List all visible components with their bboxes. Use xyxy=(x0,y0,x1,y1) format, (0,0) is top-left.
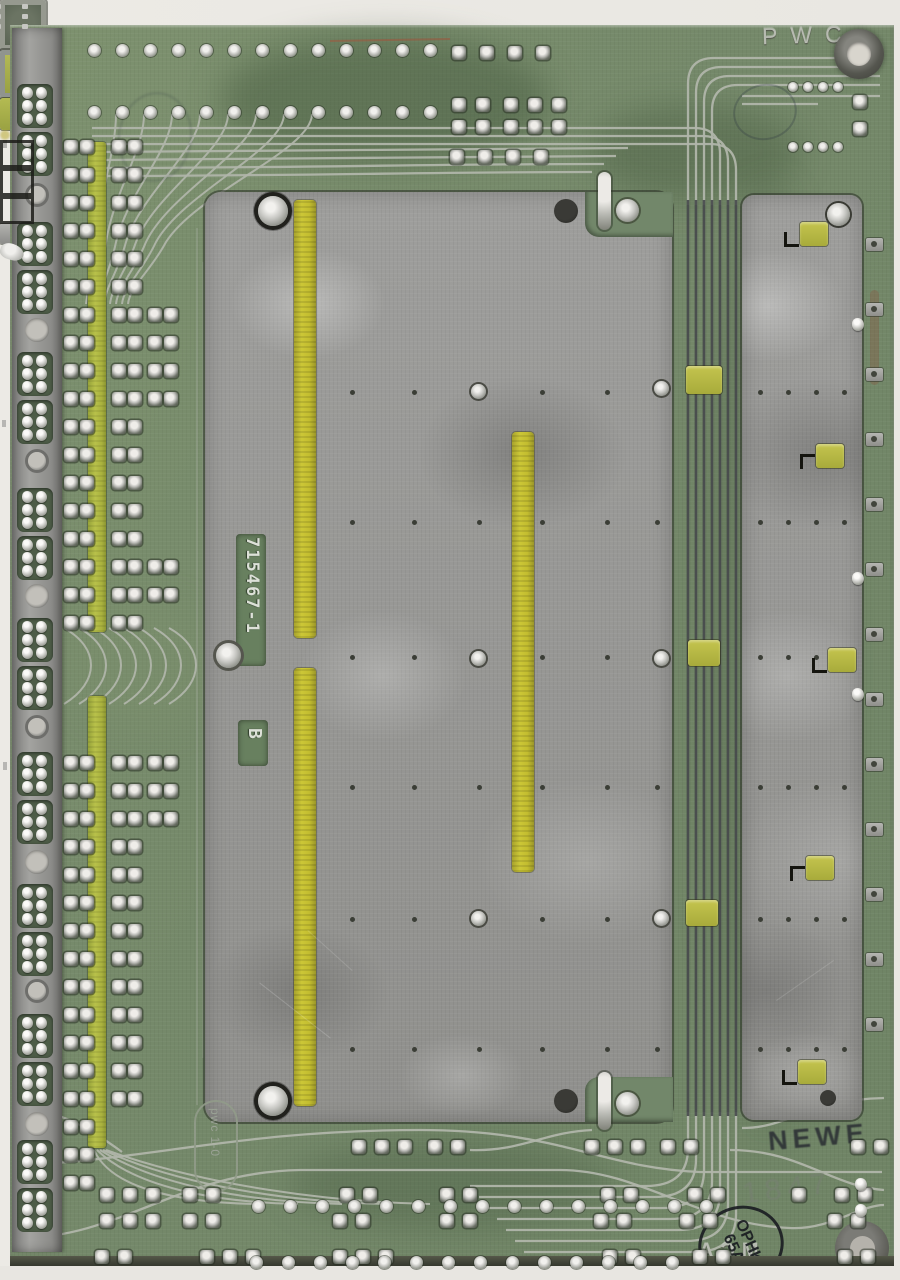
solder-pad-square xyxy=(506,150,520,164)
solder-pad-square xyxy=(148,560,162,574)
solder-joint xyxy=(36,273,47,285)
solder-joint xyxy=(22,1030,33,1042)
solder-pad-square xyxy=(128,280,142,294)
solder-joint xyxy=(36,647,47,659)
plate-index-hole xyxy=(758,390,763,395)
connector-cutout xyxy=(17,932,53,976)
solder-joint xyxy=(22,1091,33,1103)
solder-pad-square xyxy=(206,1214,220,1228)
solder-pad-square xyxy=(64,812,78,826)
plate-index-hole xyxy=(350,655,355,660)
solder-pad-round xyxy=(604,1200,617,1213)
yellow-tape-patch xyxy=(806,856,834,880)
solder-pad-square xyxy=(112,308,126,322)
solder-pad-round xyxy=(424,44,437,57)
plate-hole xyxy=(554,1089,578,1113)
solder-pad-round xyxy=(314,1256,327,1269)
solder-pad-square xyxy=(463,1188,477,1202)
solder-pad-square xyxy=(64,140,78,154)
connector-cutout xyxy=(17,1188,53,1232)
plate-index-hole xyxy=(350,390,355,395)
pwc-oval-text: pwc 1-0 xyxy=(203,1108,227,1184)
component-lead xyxy=(22,14,28,19)
plate-index-hole xyxy=(758,917,763,922)
solder-pad-square xyxy=(64,336,78,350)
solder-joint xyxy=(22,368,33,380)
solder-joint xyxy=(22,669,33,681)
solder-pad-round xyxy=(788,82,798,92)
solder-pad-round xyxy=(508,1200,521,1213)
notch-screw xyxy=(616,199,639,222)
solder-pad-round xyxy=(636,1200,649,1213)
solder-pad-square xyxy=(128,756,142,770)
rail-hole xyxy=(25,584,49,608)
solder-joint xyxy=(22,755,33,767)
solder-joint xyxy=(22,87,33,99)
plate-index-hole xyxy=(350,520,355,525)
solder-pad-square xyxy=(528,120,542,134)
solder-pad-square xyxy=(128,364,142,378)
solder-pad-round xyxy=(818,82,828,92)
solder-joint xyxy=(22,1156,33,1168)
solder-pad-square xyxy=(200,1250,214,1264)
solder-pad-round xyxy=(666,1256,679,1269)
solder-joint xyxy=(852,688,864,701)
solder-joint xyxy=(36,1078,47,1090)
component-lead xyxy=(22,24,28,29)
yellow-tape-patch xyxy=(688,640,720,666)
solder-joint xyxy=(36,504,47,516)
solder-pad-square xyxy=(80,1148,94,1162)
solder-joint xyxy=(22,286,33,298)
solder-joint xyxy=(22,682,33,694)
plate-index-hole xyxy=(842,390,847,395)
solder-pad-round xyxy=(410,1256,423,1269)
plate-index-hole xyxy=(350,785,355,790)
connector-cutout xyxy=(17,1014,53,1058)
solder-joint xyxy=(36,1091,47,1103)
solder-pad-square xyxy=(112,392,126,406)
plate-index-hole xyxy=(605,520,610,525)
solder-pad-square xyxy=(164,336,178,350)
solder-joint xyxy=(22,887,33,899)
solder-pad-square xyxy=(64,840,78,854)
solder-pad-square xyxy=(504,120,518,134)
solder-pad-round xyxy=(380,1200,393,1213)
edge-tab xyxy=(866,693,883,706)
solder-pad-square xyxy=(64,392,78,406)
solder-pad-square xyxy=(476,120,490,134)
solder-pad-square xyxy=(64,1148,78,1162)
plate-rivet xyxy=(654,911,669,926)
solder-pad-square xyxy=(164,308,178,322)
solder-joint xyxy=(22,935,33,947)
solder-pad-square xyxy=(64,476,78,490)
solder-joint xyxy=(36,935,47,947)
solder-joint xyxy=(22,913,33,925)
solder-joint xyxy=(22,1065,33,1077)
trace-path xyxy=(64,628,91,704)
solder-pad-square xyxy=(112,868,126,882)
solder-pad-square xyxy=(80,476,94,490)
solder-pad-square xyxy=(463,1214,477,1228)
solder-pad-round xyxy=(368,44,381,57)
solder-joint xyxy=(22,299,33,311)
plate-screw-ringed xyxy=(258,196,288,226)
solder-pad-square xyxy=(680,1214,694,1228)
plate-index-hole xyxy=(540,785,545,790)
yellow-tape-patch xyxy=(800,222,828,246)
plate-index-hole xyxy=(814,390,819,395)
solder-pad-square xyxy=(128,140,142,154)
solder-pad-square xyxy=(552,120,566,134)
solder-pad-square xyxy=(183,1188,197,1202)
solder-pad-square xyxy=(631,1140,645,1154)
solder-pad-square xyxy=(711,1188,725,1202)
plate-index-hole xyxy=(758,1047,763,1052)
solder-pad-square xyxy=(112,980,126,994)
solder-joint xyxy=(22,621,33,633)
solder-pad-square xyxy=(80,980,94,994)
solder-pad-square xyxy=(80,1008,94,1022)
solder-joint xyxy=(36,565,47,577)
solder-pad-square xyxy=(64,952,78,966)
solder-pad-square xyxy=(148,364,162,378)
tab-hole xyxy=(871,436,877,442)
solder-joint xyxy=(36,1217,47,1229)
solder-joint xyxy=(36,887,47,899)
solder-joint xyxy=(36,238,47,250)
solder-pad-square xyxy=(95,1250,109,1264)
solder-joint xyxy=(36,135,47,147)
solder-pad-round xyxy=(538,1256,551,1269)
solder-pad-square xyxy=(64,616,78,630)
solder-joint xyxy=(36,539,47,551)
solder-joint xyxy=(22,273,33,285)
plate-index-hole xyxy=(842,520,847,525)
yellow-strip-left-upper xyxy=(294,200,316,638)
solder-joint xyxy=(36,768,47,780)
solder-pad-square xyxy=(112,560,126,574)
component-lead xyxy=(0,4,1,9)
solder-pad-round xyxy=(348,1200,361,1213)
solder-pad-square xyxy=(128,1064,142,1078)
solder-pad-square xyxy=(508,46,522,60)
solder-pad-square xyxy=(128,476,142,490)
solder-pad-round xyxy=(88,44,101,57)
solder-pad-round xyxy=(284,106,297,119)
solder-pad-square xyxy=(64,280,78,294)
solder-joint xyxy=(22,1078,33,1090)
solder-pad-square xyxy=(333,1214,347,1228)
pcb-scan: 715467-1 B PWC pwc 1-0 MCA NEWE 1847 OPH… xyxy=(0,0,900,1280)
plate-index-hole xyxy=(605,1047,610,1052)
solder-pad-square xyxy=(80,1064,94,1078)
solder-pad-square xyxy=(112,336,126,350)
solder-joint xyxy=(22,961,33,973)
solder-pad-square xyxy=(363,1188,377,1202)
plate-index-hole xyxy=(655,1047,660,1052)
solder-pad-square xyxy=(112,476,126,490)
plate-index-hole xyxy=(758,785,763,790)
solder-pad-square xyxy=(80,896,94,910)
connector-cutout xyxy=(17,84,53,128)
bracket-mark xyxy=(0,168,34,182)
connector-cutout xyxy=(17,1140,53,1184)
solder-pad-square xyxy=(838,1250,852,1264)
solder-pad-square xyxy=(128,616,142,630)
connector-cutout xyxy=(17,618,53,662)
corner-mark xyxy=(782,1070,797,1085)
solder-pad-round xyxy=(833,82,843,92)
solder-pad-square xyxy=(128,336,142,350)
revision-text: B xyxy=(240,728,268,764)
solder-pad-square xyxy=(123,1188,137,1202)
solder-pad-round xyxy=(284,1200,297,1213)
solder-joint xyxy=(36,1204,47,1216)
solder-joint xyxy=(22,539,33,551)
plate-index-hole xyxy=(412,655,417,660)
solder-joint xyxy=(36,148,47,160)
solder-joint xyxy=(852,572,864,585)
tab-hole xyxy=(871,371,877,377)
component-lead xyxy=(22,4,28,9)
solder-pad-square xyxy=(206,1188,220,1202)
solder-pad-square xyxy=(80,868,94,882)
solder-pad-square xyxy=(80,560,94,574)
solder-pad-square xyxy=(128,840,142,854)
right-plate-screw xyxy=(827,203,850,226)
solder-pad-square xyxy=(64,896,78,910)
yellow-strip-center xyxy=(512,432,534,872)
solder-pad-round xyxy=(602,1256,615,1269)
solder-pad-round xyxy=(228,44,241,57)
scan-mark xyxy=(3,762,7,770)
solder-pad-square xyxy=(80,420,94,434)
solder-pad-square xyxy=(64,252,78,266)
plate-screw-ringed xyxy=(258,1086,288,1116)
solder-pad-square xyxy=(504,98,518,112)
solder-joint xyxy=(36,682,47,694)
solder-pad-square xyxy=(478,150,492,164)
yellow-tape-patch xyxy=(686,900,718,926)
trace-path xyxy=(109,628,136,704)
plate-index-hole xyxy=(540,655,545,660)
solder-pad-square xyxy=(223,1250,237,1264)
solder-pad-square xyxy=(450,150,464,164)
solder-joint xyxy=(22,504,33,516)
solder-pad-round xyxy=(200,106,213,119)
solder-pad-square xyxy=(112,280,126,294)
right-plate-hole xyxy=(820,1090,836,1106)
solder-pad-square xyxy=(792,1188,806,1202)
solder-pad-round xyxy=(256,106,269,119)
solder-pad-square xyxy=(80,224,94,238)
solder-joint xyxy=(36,251,47,263)
edge-tab xyxy=(866,758,883,771)
solder-pad-square xyxy=(183,1214,197,1228)
corner-mark xyxy=(812,658,827,673)
solder-pad-round xyxy=(396,106,409,119)
solder-pad-square xyxy=(64,224,78,238)
plate-index-hole xyxy=(412,520,417,525)
solder-joint xyxy=(855,1204,867,1217)
tab-hole xyxy=(871,631,877,637)
plate-index-hole xyxy=(350,1047,355,1052)
solder-joint xyxy=(36,621,47,633)
solder-joint xyxy=(22,948,33,960)
solder-pad-round xyxy=(116,106,129,119)
solder-joint xyxy=(22,781,33,793)
plate-index-hole xyxy=(758,520,763,525)
solder-pad-square xyxy=(164,588,178,602)
solder-joint xyxy=(22,803,33,815)
solder-pad-square xyxy=(112,1092,126,1106)
solder-pad-round xyxy=(700,1200,713,1213)
plate-index-hole xyxy=(540,1047,545,1052)
tab-hole xyxy=(871,1021,877,1027)
solder-joint xyxy=(22,634,33,646)
solder-pad-square xyxy=(851,1140,865,1154)
solder-pad-square xyxy=(112,952,126,966)
solder-joint xyxy=(36,1017,47,1029)
solder-pad-square xyxy=(80,1176,94,1190)
solder-joint xyxy=(22,381,33,393)
solder-pad-square xyxy=(148,392,162,406)
connector-cutout xyxy=(17,400,53,444)
solder-pad-square xyxy=(80,364,94,378)
plate-index-hole xyxy=(540,520,545,525)
rail-hole xyxy=(28,718,46,736)
solder-joint xyxy=(22,900,33,912)
trace-path xyxy=(154,628,181,704)
solder-pad-square xyxy=(64,420,78,434)
solder-pad-square xyxy=(148,308,162,322)
solder-pad-round xyxy=(368,106,381,119)
trace-path xyxy=(79,628,106,704)
solder-pad-square xyxy=(112,140,126,154)
solder-joint xyxy=(22,768,33,780)
solder-pad-square xyxy=(352,1140,366,1154)
solder-pad-round xyxy=(540,1200,553,1213)
solder-pad-round xyxy=(144,44,157,57)
solder-pad-square xyxy=(80,336,94,350)
solder-pad-square xyxy=(64,168,78,182)
solder-pad-round xyxy=(572,1200,585,1213)
stadium-pad xyxy=(598,1072,611,1130)
plate-index-hole xyxy=(540,390,545,395)
edge-tab xyxy=(866,888,883,901)
solder-joint xyxy=(22,355,33,367)
notch-screw xyxy=(616,1092,639,1115)
solder-pad-square xyxy=(64,308,78,322)
solder-pad-square xyxy=(80,392,94,406)
solder-pad-square xyxy=(64,1120,78,1134)
solder-joint xyxy=(22,552,33,564)
solder-pad-square xyxy=(398,1140,412,1154)
solder-pad-square xyxy=(148,756,162,770)
solder-pad-square xyxy=(112,812,126,826)
solder-joint xyxy=(36,816,47,828)
solder-pad-square xyxy=(128,924,142,938)
rail-hole xyxy=(25,318,49,342)
solder-pad-square xyxy=(112,196,126,210)
solder-pad-square xyxy=(333,1250,347,1264)
solder-joint xyxy=(855,1178,867,1191)
solder-pad-square xyxy=(476,98,490,112)
solder-joint xyxy=(36,695,47,707)
rail-hole xyxy=(28,982,46,1000)
edge-tab xyxy=(866,823,883,836)
bracket-mark xyxy=(0,210,34,224)
solder-pad-square xyxy=(80,784,94,798)
solder-joint xyxy=(22,1017,33,1029)
plate-rivet xyxy=(471,651,486,666)
bracket-mark xyxy=(0,182,34,196)
solder-pad-square xyxy=(128,1092,142,1106)
solder-pad-round xyxy=(282,1256,295,1269)
solder-joint xyxy=(36,381,47,393)
solder-pad-square xyxy=(128,812,142,826)
solder-pad-square xyxy=(118,1250,132,1264)
solder-pad-round xyxy=(474,1256,487,1269)
solder-pad-round xyxy=(412,1200,425,1213)
edge-tab xyxy=(866,563,883,576)
connector-cutout xyxy=(17,884,53,928)
solder-pad-square xyxy=(617,1214,631,1228)
solder-pad-square xyxy=(128,196,142,210)
solder-joint xyxy=(36,286,47,298)
solder-joint xyxy=(36,1065,47,1077)
flux-stain xyxy=(0,130,10,140)
solder-pad-square xyxy=(112,504,126,518)
solder-pad-square xyxy=(64,532,78,546)
solder-pad-square xyxy=(80,1120,94,1134)
solder-pad-square xyxy=(112,616,126,630)
plate-index-hole xyxy=(786,785,791,790)
plate-index-hole xyxy=(758,655,763,660)
solder-joint xyxy=(22,491,33,503)
solder-pad-round xyxy=(803,82,813,92)
solder-pad-square xyxy=(624,1188,638,1202)
solder-pad-square xyxy=(64,980,78,994)
solder-pad-square xyxy=(112,1036,126,1050)
solder-pad-round xyxy=(396,44,409,57)
solder-pad-square xyxy=(148,588,162,602)
solder-pad-round xyxy=(788,142,798,152)
bracket-mark xyxy=(0,140,34,154)
corner-grommet-top-right xyxy=(834,29,884,79)
solder-pad-round xyxy=(284,44,297,57)
solder-pad-square xyxy=(64,868,78,882)
solder-joint xyxy=(852,318,864,331)
solder-pad-square xyxy=(693,1250,707,1264)
solder-joint xyxy=(22,429,33,441)
solder-joint xyxy=(22,816,33,828)
solder-joint xyxy=(36,1156,47,1168)
solder-pad-square xyxy=(80,280,94,294)
solder-pad-square xyxy=(128,252,142,266)
solder-pad-square xyxy=(64,560,78,574)
solder-joint xyxy=(36,368,47,380)
solder-pad-square xyxy=(164,364,178,378)
plate-index-hole xyxy=(655,520,660,525)
plate-index-hole xyxy=(605,390,610,395)
corner-mark xyxy=(784,232,799,247)
solder-pad-square xyxy=(128,532,142,546)
plate-index-hole xyxy=(477,520,482,525)
plate-index-hole xyxy=(842,1047,847,1052)
